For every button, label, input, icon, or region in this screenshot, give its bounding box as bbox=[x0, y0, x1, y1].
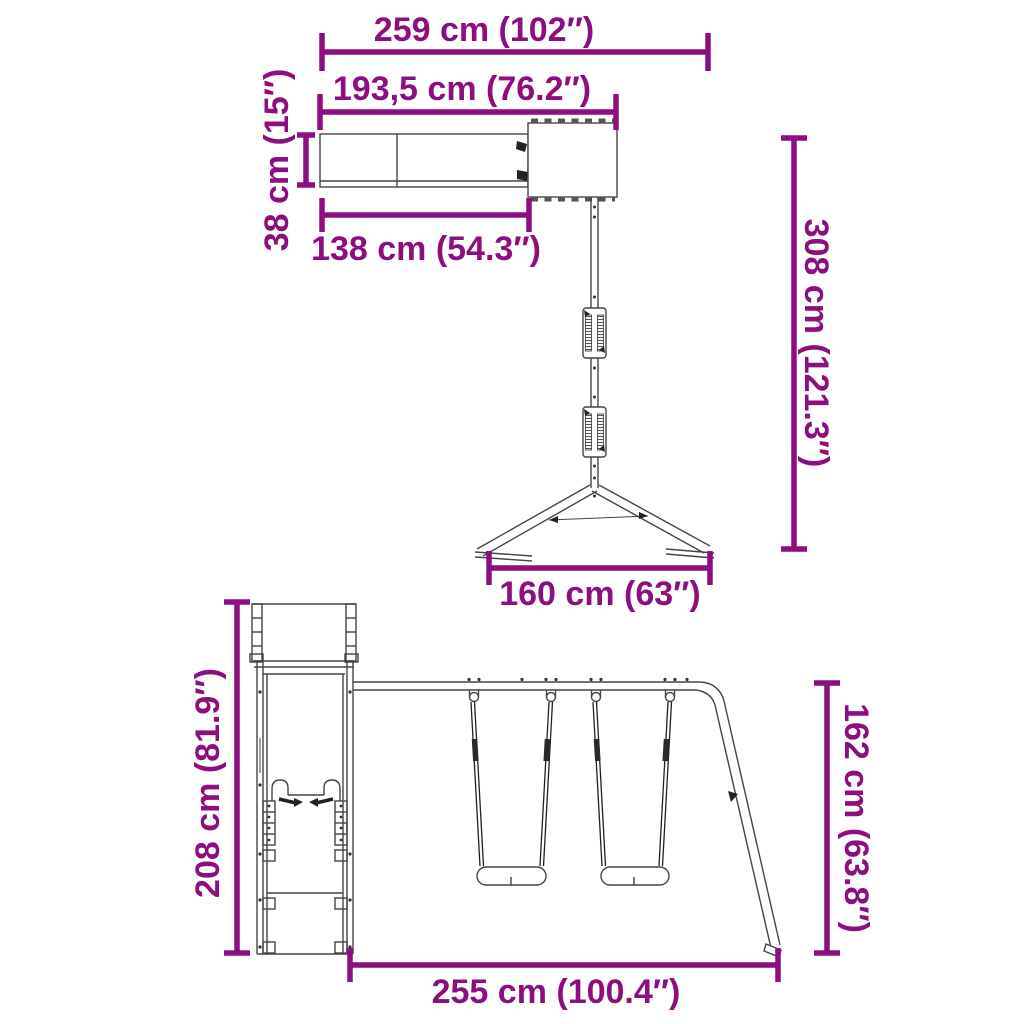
swing-hanger-plan bbox=[583, 407, 606, 457]
rope-adjuster bbox=[475, 739, 476, 761]
dim-slide-width-label: 38 cm (15″) bbox=[258, 69, 296, 252]
diagram-canvas: 259 cm (102″) 193,5 cm (76.2″) 38 cm (15… bbox=[0, 0, 1024, 1024]
slide-entry-handles bbox=[272, 780, 340, 807]
swing-hanger-shackle bbox=[666, 690, 675, 702]
slide-clamp-icon bbox=[516, 141, 527, 152]
swing-2 bbox=[592, 690, 675, 885]
dim-total-depth-label: 308 cm (121.3″) bbox=[797, 219, 835, 468]
platform-plan bbox=[528, 121, 617, 199]
swing-1 bbox=[470, 690, 556, 885]
dim-slide-width: 38 cm (15″) bbox=[258, 69, 315, 252]
swing-hanger-shackle bbox=[547, 690, 556, 702]
dim-swing-frame-height: 162 cm (63.8″) bbox=[814, 683, 875, 953]
swing-hanger-shackle bbox=[470, 690, 479, 702]
rope-adjuster bbox=[665, 739, 666, 761]
dim-upper-frame-length-label: 193,5 cm (76.2″) bbox=[333, 70, 591, 108]
aframe-crossbar bbox=[549, 516, 648, 520]
side-view-drawing: 208 cm (81.9″) 162 cm (63.8″) 255 cm (10… bbox=[189, 602, 875, 1011]
dim-aframe-spread-label: 160 cm (63″) bbox=[499, 575, 701, 613]
dim-total-depth: 308 cm (121.3″) bbox=[781, 138, 835, 549]
dim-base-length: 255 cm (100.4″) bbox=[350, 948, 778, 1011]
dim-base-length-label: 255 cm (100.4″) bbox=[432, 973, 681, 1011]
tower-brackets bbox=[263, 801, 347, 953]
tower-side bbox=[250, 604, 358, 954]
swing-hanger-plan bbox=[583, 308, 606, 358]
swing-seat bbox=[601, 867, 669, 885]
swing-hanger-shackle bbox=[592, 690, 601, 702]
top-view-drawing: 259 cm (102″) 193,5 cm (76.2″) 38 cm (15… bbox=[258, 11, 835, 613]
slide-plan bbox=[320, 134, 528, 187]
dim-tower-height-label: 208 cm (81.9″) bbox=[189, 668, 227, 898]
dim-total-width-label: 259 cm (102″) bbox=[374, 11, 594, 49]
rope-adjuster bbox=[546, 739, 547, 761]
rope-adjuster bbox=[597, 739, 598, 761]
dim-total-width-plan: 259 cm (102″) bbox=[322, 11, 708, 71]
playset-dimension-diagram: 259 cm (102″) 193,5 cm (76.2″) 38 cm (15… bbox=[0, 0, 1024, 1024]
swing-beam-side bbox=[353, 678, 781, 957]
dim-swing-frame-height-label: 162 cm (63.8″) bbox=[837, 703, 875, 933]
dim-slide-length: 138 cm (54.3″) bbox=[311, 198, 541, 268]
slide-clamp-icon bbox=[517, 170, 528, 181]
dim-slide-length-label: 138 cm (54.3″) bbox=[311, 230, 541, 268]
dim-tower-height: 208 cm (81.9″) bbox=[189, 602, 250, 953]
